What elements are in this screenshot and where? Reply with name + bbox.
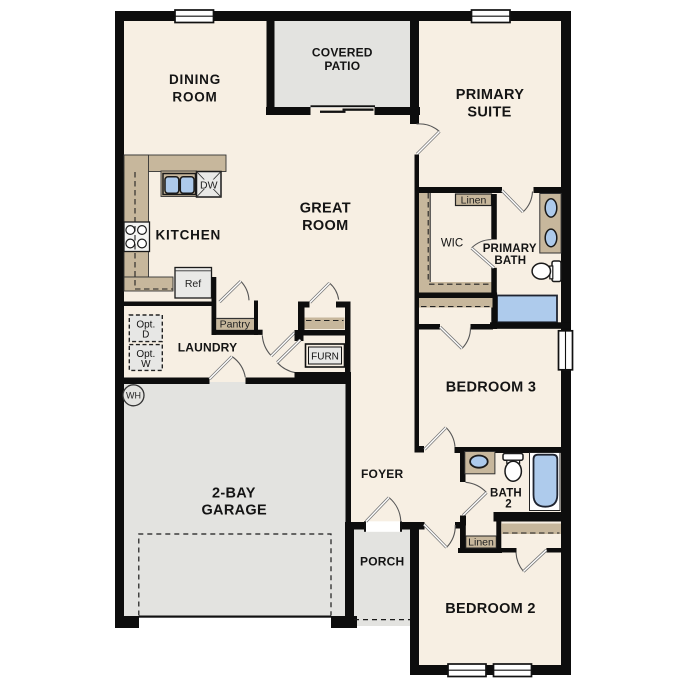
svg-text:W: W — [141, 359, 151, 370]
svg-text:Linen: Linen — [468, 537, 494, 549]
svg-text:KITCHEN: KITCHEN — [155, 227, 221, 242]
svg-text:Ref: Ref — [185, 278, 201, 290]
svg-text:2: 2 — [505, 499, 512, 511]
svg-text:FURN: FURN — [311, 352, 339, 363]
svg-text:D: D — [142, 330, 149, 341]
svg-text:Linen: Linen — [461, 194, 487, 206]
svg-text:ROOM: ROOM — [302, 218, 348, 234]
svg-text:DW: DW — [200, 179, 218, 191]
svg-text:COVERED: COVERED — [312, 46, 373, 60]
svg-text:BEDROOM 2: BEDROOM 2 — [445, 601, 536, 617]
svg-text:BEDROOM 3: BEDROOM 3 — [446, 380, 537, 396]
svg-text:WH: WH — [126, 391, 141, 401]
svg-text:GARAGE: GARAGE — [201, 503, 266, 519]
svg-text:PRIMARY: PRIMARY — [483, 243, 537, 255]
svg-text:PORCH: PORCH — [360, 555, 404, 569]
svg-text:ROOM: ROOM — [172, 90, 217, 105]
svg-text:GREAT: GREAT — [300, 201, 351, 217]
svg-text:Pantry: Pantry — [220, 319, 251, 331]
svg-text:WIC: WIC — [441, 238, 463, 250]
svg-text:BATH: BATH — [490, 487, 522, 499]
svg-text:2-BAY: 2-BAY — [212, 485, 256, 501]
svg-text:FOYER: FOYER — [361, 467, 403, 481]
svg-text:DINING: DINING — [169, 72, 221, 87]
svg-text:PRIMARY: PRIMARY — [456, 87, 524, 103]
svg-text:BATH: BATH — [494, 255, 526, 267]
svg-text:PATIO: PATIO — [324, 59, 360, 73]
svg-text:SUITE: SUITE — [467, 105, 511, 121]
svg-text:LAUNDRY: LAUNDRY — [178, 340, 238, 354]
